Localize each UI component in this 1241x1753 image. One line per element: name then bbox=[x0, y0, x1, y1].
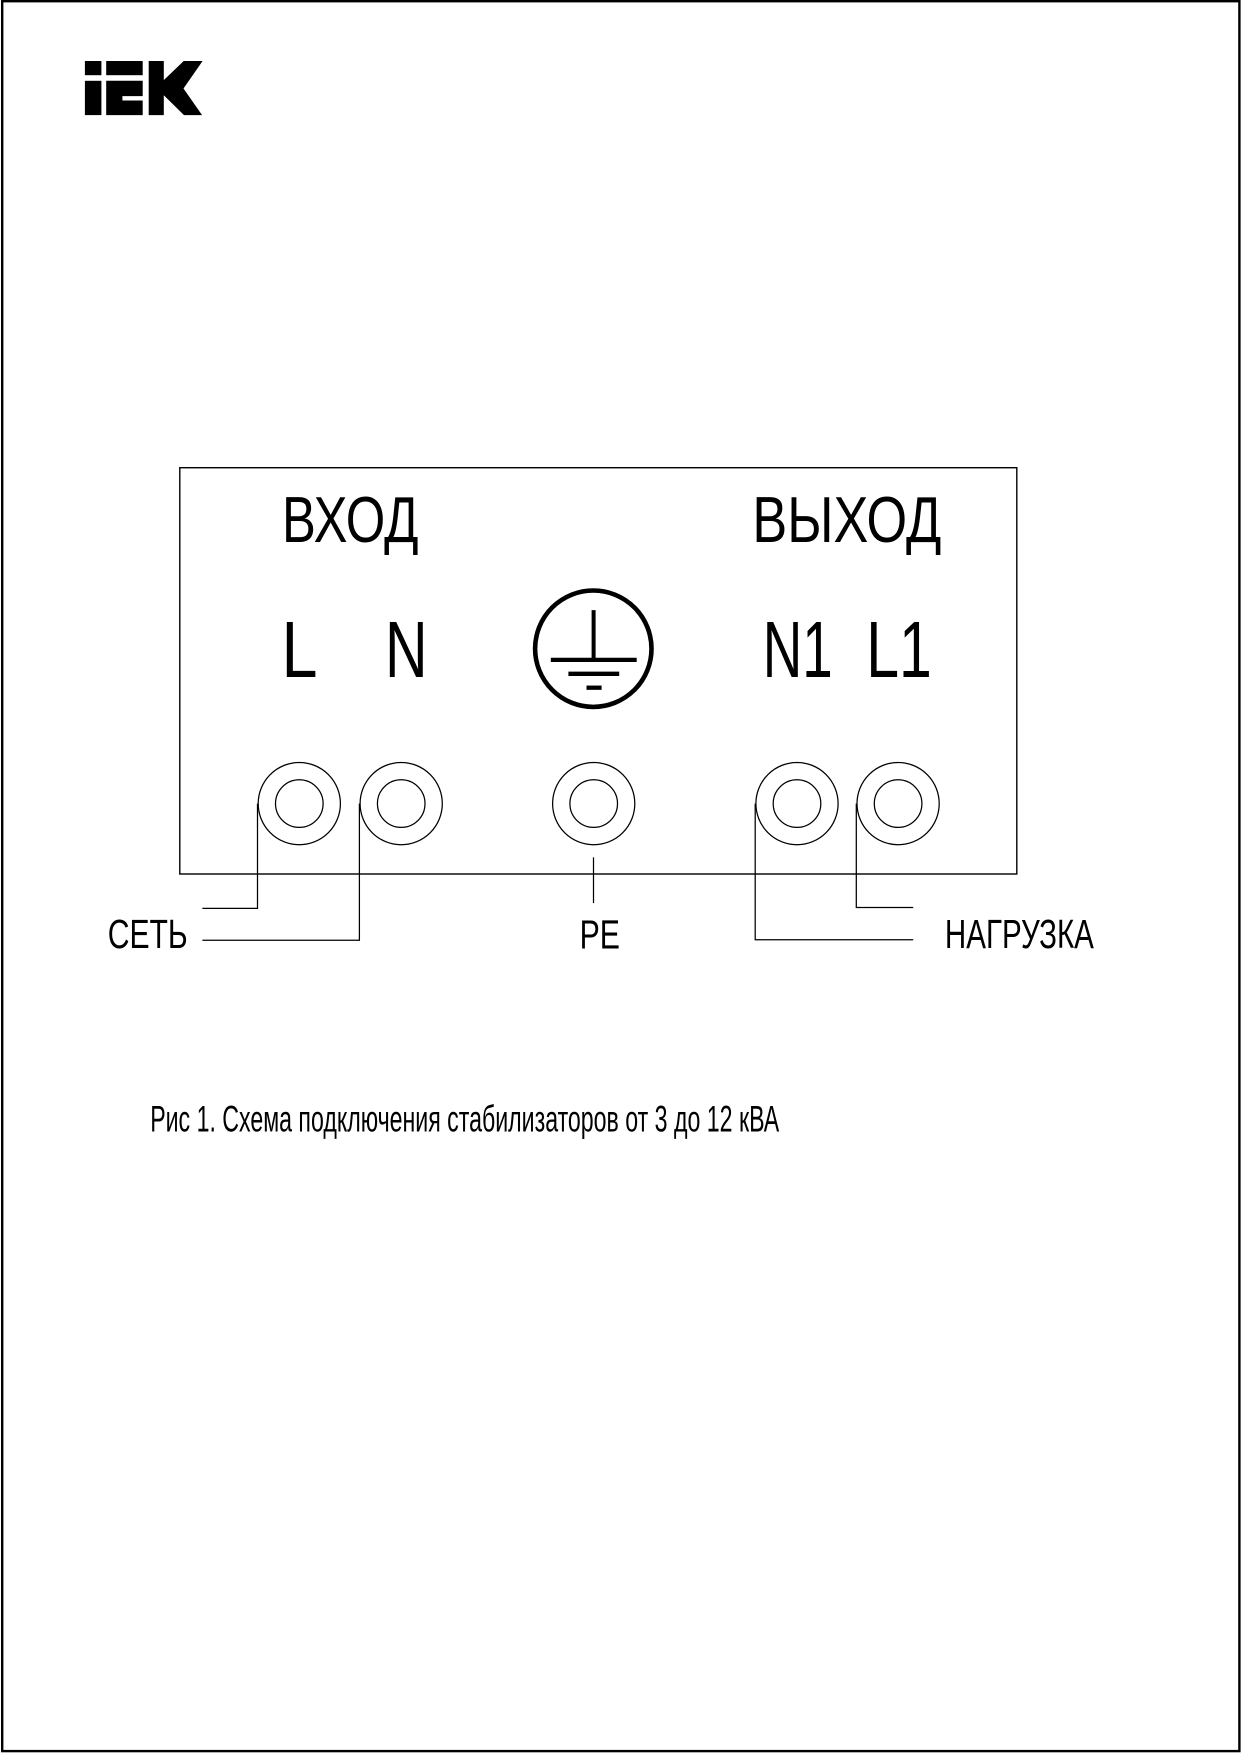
svg-text:PE: PE bbox=[580, 912, 620, 958]
svg-text:СЕТЬ: СЕТЬ bbox=[108, 911, 188, 957]
svg-text:Рис 1. Схема подключения стаби: Рис 1. Схема подключения стабилизаторов … bbox=[150, 1097, 779, 1139]
svg-text:ВЫХОД: ВЫХОД bbox=[752, 483, 941, 556]
svg-text:ВХОД: ВХОД bbox=[282, 483, 419, 556]
svg-text:НАГРУЗКА: НАГРУЗКА bbox=[945, 911, 1094, 957]
svg-text:L: L bbox=[282, 605, 318, 694]
svg-text:N: N bbox=[385, 605, 428, 694]
svg-text:N1: N1 bbox=[763, 605, 833, 694]
svg-text:L1: L1 bbox=[866, 605, 932, 694]
